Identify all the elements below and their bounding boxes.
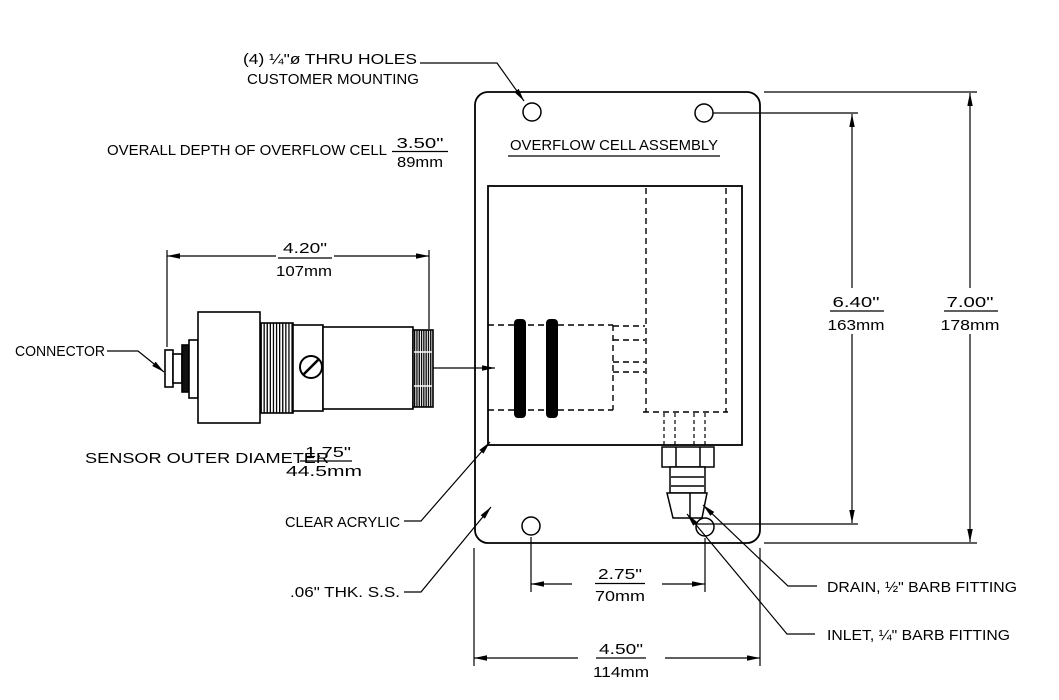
hidden-sensor-bore bbox=[488, 325, 645, 410]
leader-panel-material bbox=[404, 507, 491, 592]
thru-holes-label-line2: CUSTOMER MOUNTING bbox=[247, 71, 419, 88]
panel-width-mm: 114mm bbox=[593, 664, 649, 681]
sensor-threads bbox=[261, 323, 293, 413]
hole-spacing-vertical-mm: 163mm bbox=[828, 317, 885, 334]
panel-height-mm: 178mm bbox=[941, 317, 1000, 334]
engineering-drawing-overflow-cell: (4) ¼"ø THRU HOLES CUSTOMER MOUNTING OVE… bbox=[0, 0, 1059, 700]
sensor-barrel bbox=[323, 327, 413, 409]
hole-spacing-vertical-inches: 6.40" bbox=[833, 294, 880, 311]
dim-bottom-hole-spacing bbox=[531, 537, 705, 592]
overall-depth-label: OVERALL DEPTH OF OVERFLOW CELL bbox=[107, 142, 387, 159]
inlet-label: INLET, ¼" BARB FITTING bbox=[827, 627, 1010, 644]
hidden-overflow-channel bbox=[643, 188, 728, 412]
panel-width-inches: 4.50" bbox=[599, 641, 643, 658]
mounting-hole-bottom-left bbox=[522, 517, 540, 535]
sensor-side-view bbox=[165, 312, 433, 423]
leader-connector bbox=[107, 351, 164, 372]
drain-label: DRAIN, ½" BARB FITTING bbox=[827, 579, 1017, 596]
panel-height-inches: 7.00" bbox=[947, 294, 994, 311]
sensor-od-mm: 44.5mm bbox=[286, 463, 362, 480]
thru-holes-label-line1: (4) ¼"ø THRU HOLES bbox=[243, 51, 417, 68]
mounting-hole-top-right bbox=[695, 104, 713, 122]
sensor-od-inches: 1.75" bbox=[305, 444, 351, 461]
connector-flange bbox=[165, 350, 173, 387]
sensor-length-inches: 4.20" bbox=[283, 240, 327, 257]
bottom-hole-spacing-mm: 70mm bbox=[595, 588, 645, 605]
page-title: OVERFLOW CELL ASSEMBLY bbox=[510, 137, 718, 154]
mounting-hole-bottom-right bbox=[696, 518, 714, 536]
overall-depth-mm: 89mm bbox=[397, 154, 443, 171]
connector-label: CONNECTOR bbox=[15, 343, 105, 360]
clear-acrylic-label: CLEAR ACRYLIC bbox=[285, 514, 400, 531]
sensor-length-mm: 107mm bbox=[276, 263, 332, 280]
leader-thru-holes bbox=[420, 63, 524, 101]
bottom-hole-spacing-inches: 2.75" bbox=[598, 566, 642, 583]
sensor-body bbox=[198, 312, 260, 423]
connector-step bbox=[189, 340, 198, 398]
mounting-hole-top-left bbox=[523, 103, 541, 121]
acrylic-block bbox=[488, 186, 742, 445]
drawing-svg: (4) ¼"ø THRU HOLES CUSTOMER MOUNTING OVE… bbox=[0, 0, 1059, 700]
o-ring-seals bbox=[514, 319, 558, 418]
connector-barrel bbox=[173, 354, 182, 383]
connector-dark-ring bbox=[182, 345, 189, 392]
panel-outline bbox=[475, 92, 760, 543]
drawing-title: OVERFLOW CELL ASSEMBLY bbox=[508, 137, 720, 156]
sensor-knurled-cap bbox=[413, 330, 433, 407]
hidden-fitting-bores bbox=[664, 413, 705, 447]
panel-material-label: .06" THK. S.S. bbox=[290, 584, 400, 601]
leader-clear-acrylic bbox=[404, 442, 490, 521]
overall-depth-inches: 3.50" bbox=[397, 135, 444, 152]
